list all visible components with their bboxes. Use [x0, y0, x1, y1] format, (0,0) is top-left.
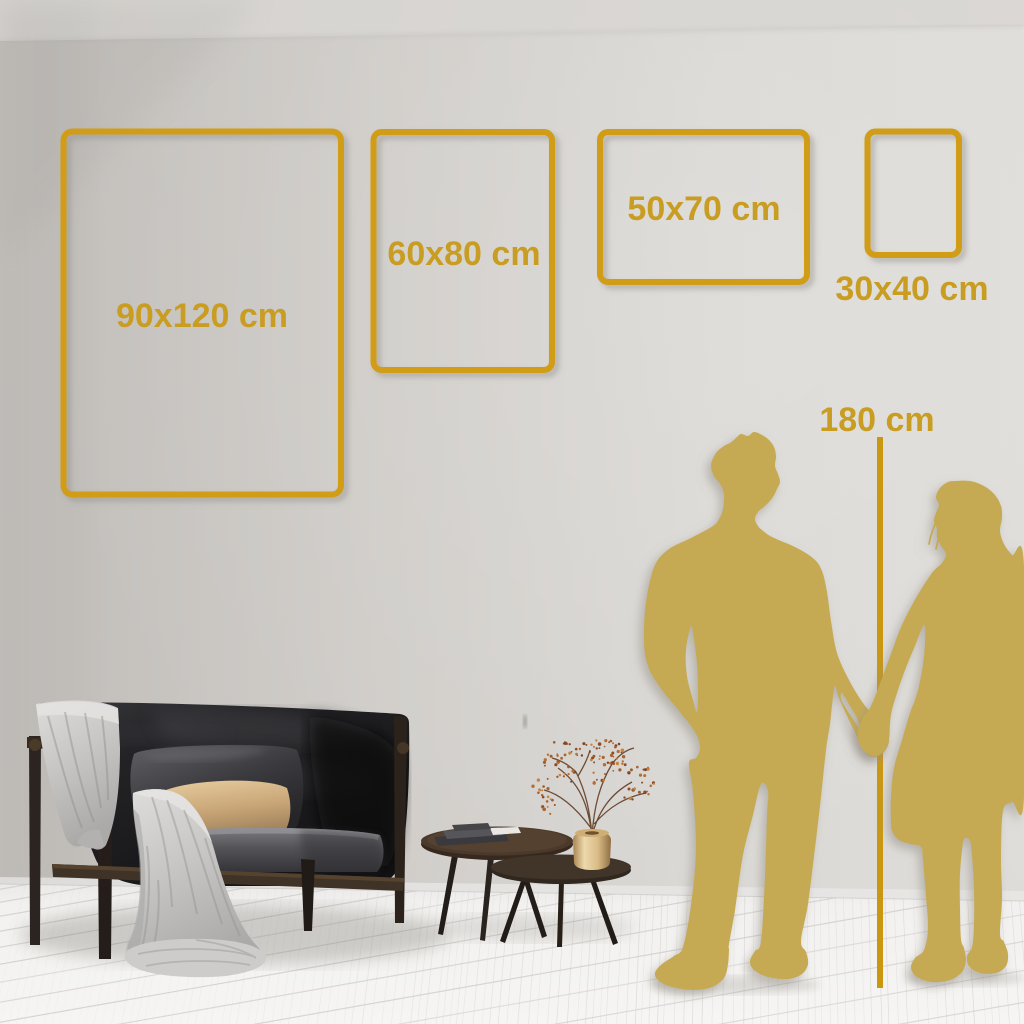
- svg-text:180 cm: 180 cm: [819, 401, 934, 439]
- svg-text:90x120 cm: 90x120 cm: [116, 297, 288, 335]
- svg-text:30x40 cm: 30x40 cm: [835, 270, 988, 308]
- svg-text:60x80 cm: 60x80 cm: [387, 235, 540, 273]
- svg-text:50x70 cm: 50x70 cm: [627, 190, 780, 228]
